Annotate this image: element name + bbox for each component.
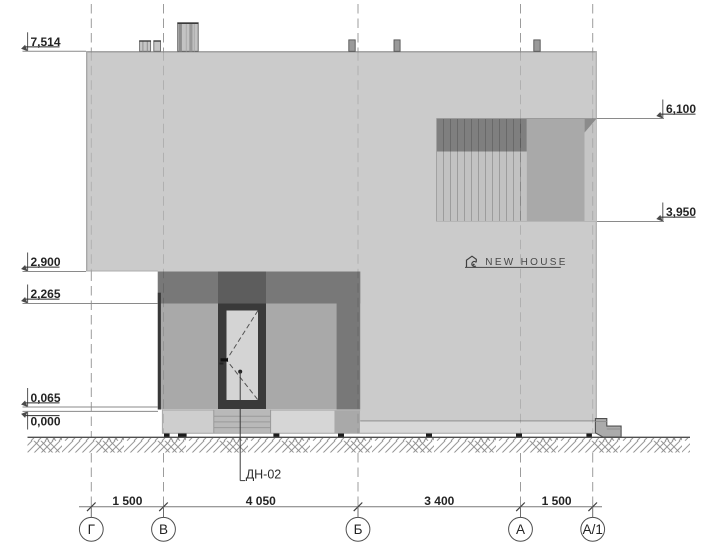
svg-text:4 050: 4 050 bbox=[246, 494, 276, 508]
svg-text:1 500: 1 500 bbox=[542, 494, 572, 508]
svg-text:Г: Г bbox=[88, 522, 96, 537]
svg-text:1 500: 1 500 bbox=[112, 494, 142, 508]
svg-text:3 400: 3 400 bbox=[424, 494, 454, 508]
svg-text:А/1: А/1 bbox=[583, 522, 603, 537]
svg-text:NEW HOUSE: NEW HOUSE bbox=[485, 257, 567, 268]
svg-text:0,000: 0,000 bbox=[31, 415, 61, 429]
svg-text:ДН-02: ДН-02 bbox=[246, 468, 282, 482]
svg-text:Б: Б bbox=[354, 522, 363, 537]
svg-text:В: В bbox=[159, 522, 168, 537]
svg-text:А: А bbox=[516, 522, 525, 537]
